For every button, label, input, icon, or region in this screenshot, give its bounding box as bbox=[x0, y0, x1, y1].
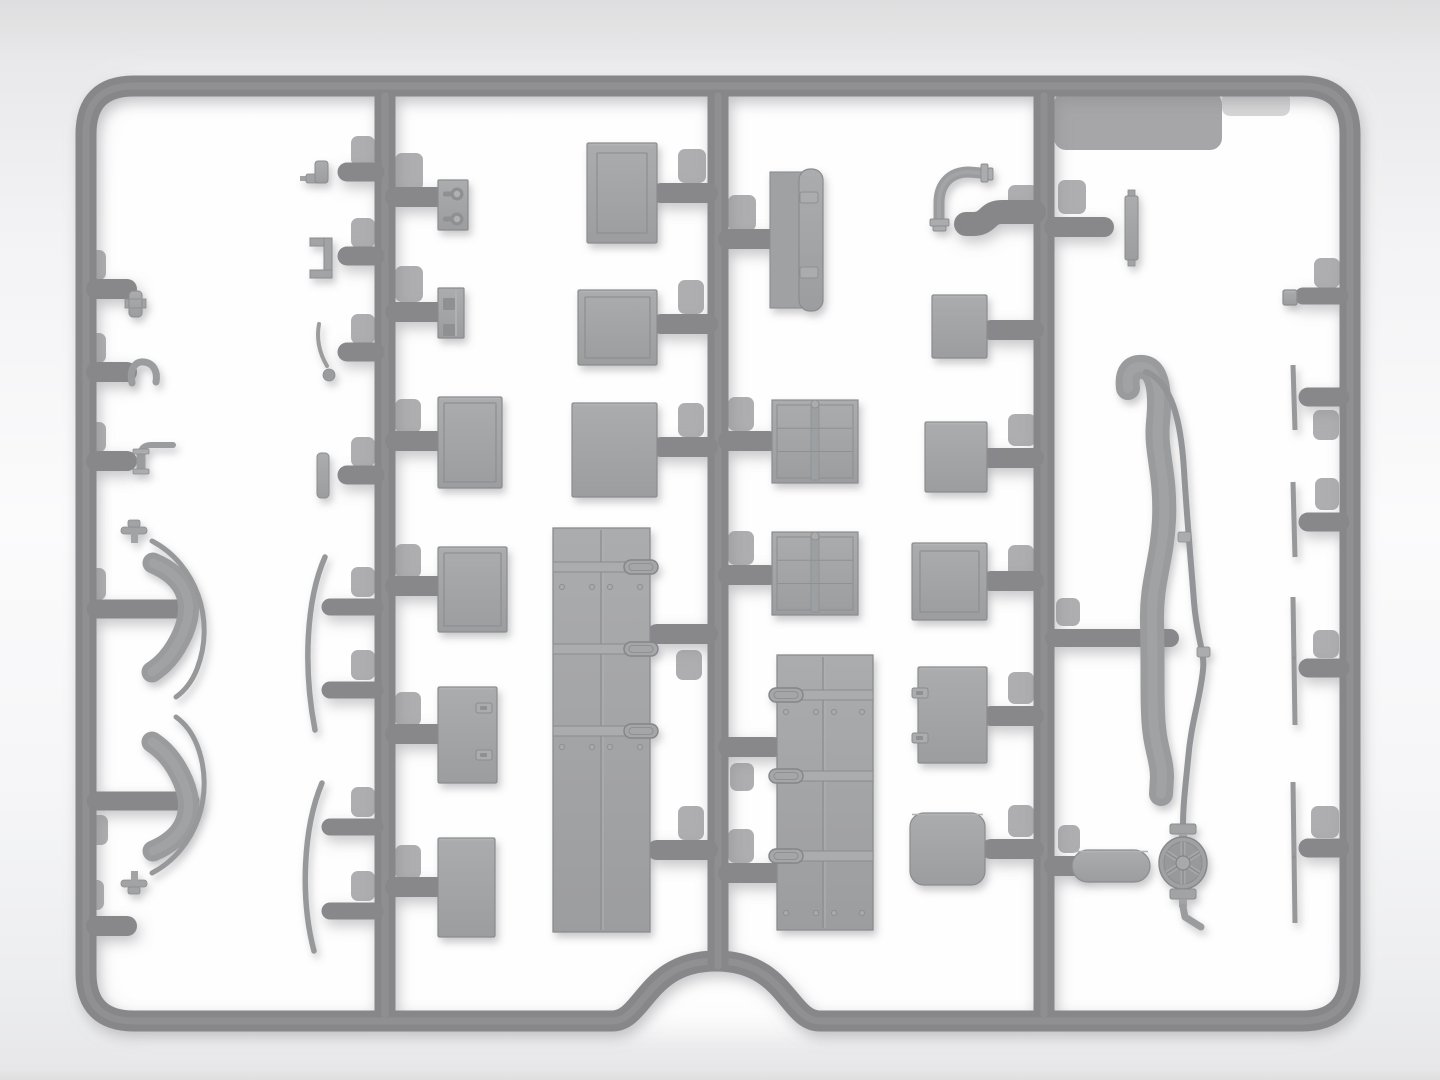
feeder-s-bend bbox=[966, 212, 1034, 224]
part-crate-2 bbox=[772, 532, 858, 615]
part-edge-blade-c bbox=[1292, 597, 1296, 725]
part-small-square bbox=[1283, 290, 1297, 305]
part-crate-1 bbox=[772, 400, 858, 483]
part-tarp-roll bbox=[770, 169, 823, 311]
part-edge-blade-d bbox=[1292, 782, 1296, 923]
part-squarehole-plate bbox=[438, 288, 464, 338]
sprue-screenshot bbox=[0, 0, 1440, 1080]
part-latch-panel-left bbox=[438, 687, 497, 783]
part-panel-a bbox=[438, 397, 502, 488]
part-small-strip bbox=[317, 453, 329, 498]
part-rounded-box bbox=[910, 813, 985, 885]
part-box-b bbox=[925, 422, 987, 492]
part-door-panel bbox=[587, 143, 657, 243]
part-edge-blade-b bbox=[1293, 482, 1295, 557]
part-box-a bbox=[932, 295, 987, 358]
part-square-panel-2 bbox=[578, 290, 657, 365]
part-long-door-left-hinges bbox=[769, 655, 873, 930]
part-edge-blade-a bbox=[1293, 365, 1295, 430]
part-long-door-right-hinges bbox=[553, 528, 658, 932]
part-hinge-strip bbox=[1125, 190, 1138, 266]
part-keyhole-plate bbox=[438, 180, 468, 230]
part-latch-panel-right bbox=[912, 667, 987, 763]
part-pill-muffler bbox=[1072, 850, 1150, 882]
part-box-c bbox=[912, 543, 987, 620]
part-square-panel-3 bbox=[572, 403, 657, 497]
part-panel-c bbox=[438, 838, 495, 937]
sprue-render-canvas bbox=[0, 0, 1440, 1080]
part-panel-b bbox=[438, 547, 507, 632]
